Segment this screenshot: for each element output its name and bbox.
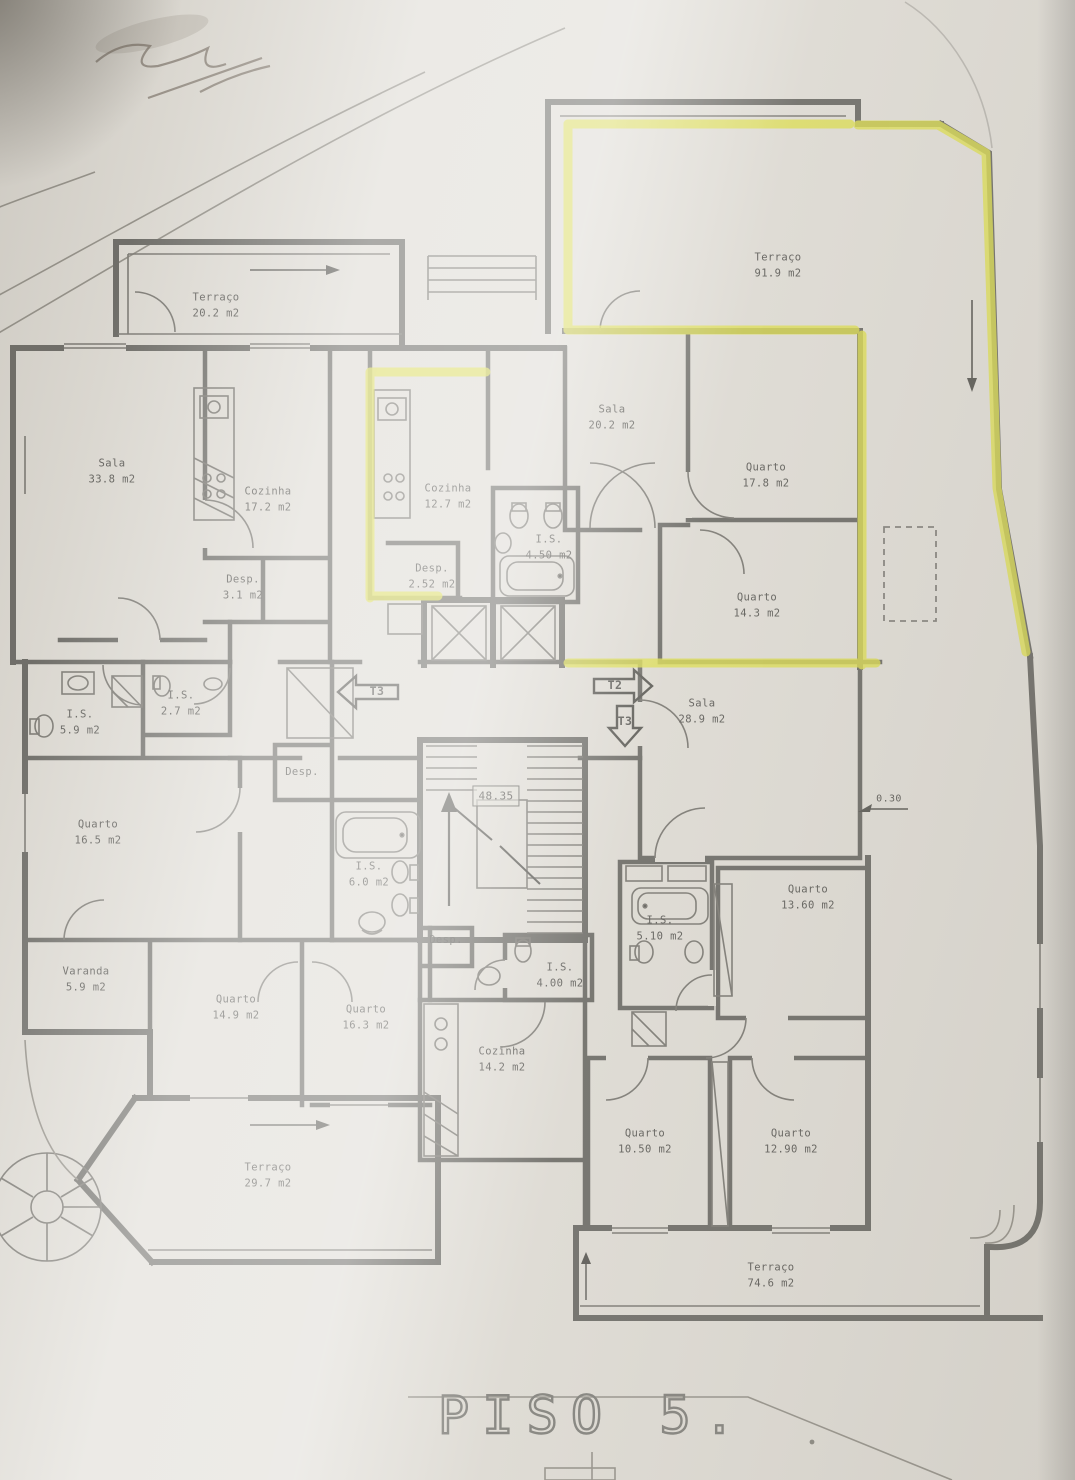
room-desp-small: Desp. [429,932,463,948]
room-desp-mid: Desp. [285,764,319,780]
room-quarto-1050: Quarto 10.50 m2 [618,1126,672,1159]
room-quarto-163: Quarto 16.3 m2 [342,1002,389,1035]
room-terraco-746: Terraço 74.6 m2 [747,1260,794,1293]
room-desp-252: Desp. 2.52 m2 [408,561,455,594]
room-sala-202: Sala 20.2 m2 [588,402,635,435]
stair-level-dim: 48.35 [472,785,519,806]
room-sala-338: Sala 33.8 m2 [88,456,135,489]
room-is-450: I.S. 4.50 m2 [525,532,572,565]
floor-plan-scan: Terraço 20.2 m2Terraço 91.9 m2Sala 33.8 … [0,0,1075,1480]
room-cozinha-172: Cozinha 17.2 m2 [244,484,291,517]
room-quarto-178: Quarto 17.8 m2 [742,460,789,493]
room-quarto-1290: Quarto 12.90 m2 [764,1126,818,1159]
room-is-27: I.S. 2.7 m2 [161,688,201,721]
room-quarto-149: Quarto 14.9 m2 [212,992,259,1025]
room-sala-289: Sala 28.9 m2 [678,696,725,729]
room-cozinha-142: Cozinha 14.2 m2 [478,1044,525,1077]
room-terraco-202: Terraço 20.2 m2 [192,290,239,323]
room-is-60: I.S. 6.0 m2 [349,859,389,892]
apartment-type-t3-down: T3 [618,713,633,731]
room-terraco-297: Terraço 29.7 m2 [244,1160,291,1193]
room-desp-31: Desp. 3.1 m2 [223,572,263,605]
room-quarto-143: Quarto 14.3 m2 [733,590,780,623]
room-is-400: I.S. 4.00 m2 [536,960,583,993]
room-is-59: I.S. 5.9 m2 [60,707,100,740]
apartment-type-t3-left: T3 [370,683,385,701]
room-terraco-919: Terraço 91.9 m2 [754,250,801,283]
apartment-type-t2-right: T2 [608,677,623,695]
room-labels-layer: Terraço 20.2 m2Terraço 91.9 m2Sala 33.8 … [0,0,1075,1480]
room-is-510: I.S. 5.10 m2 [636,913,683,946]
room-cozinha-127: Cozinha 12.7 m2 [424,481,471,514]
room-varanda-59: Varanda 5.9 m2 [62,964,109,997]
wall-dim-030: 0.30 [876,791,902,807]
room-quarto-165: Quarto 16.5 m2 [74,817,121,850]
floor-title: PISO 5. [428,1390,758,1442]
room-quarto-1360: Quarto 13.60 m2 [781,882,835,915]
